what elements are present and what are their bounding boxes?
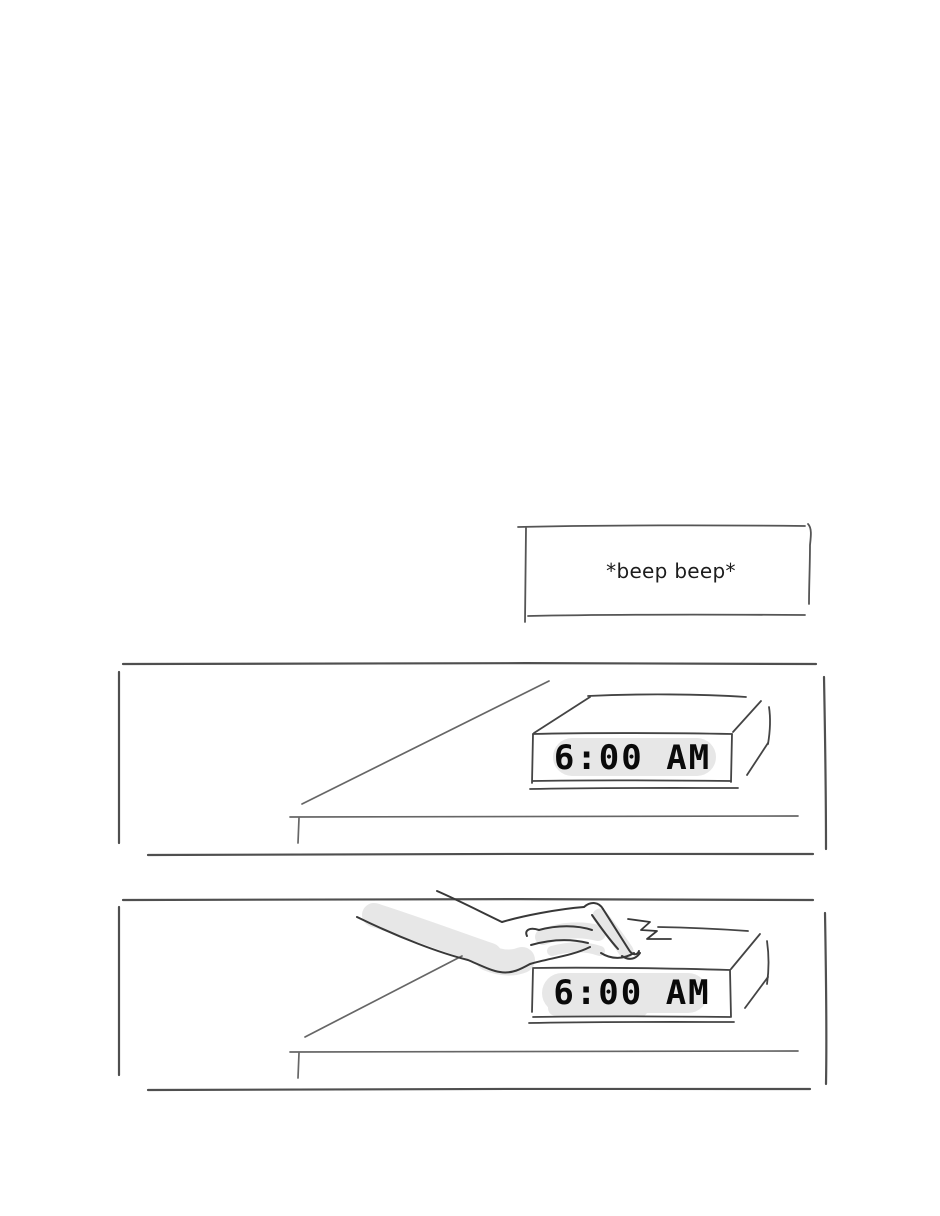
panel2-bottom <box>148 1089 810 1090</box>
clock2-time-display: 6:00 AM <box>533 968 731 1018</box>
press-motion-squiggle <box>628 919 671 939</box>
panel1-top <box>123 663 816 664</box>
palm-shade <box>488 958 522 962</box>
middle-finger-shade <box>543 930 598 937</box>
clock1-base-line <box>530 788 738 789</box>
index-knuckle <box>584 903 603 909</box>
table1-leg <box>298 818 299 843</box>
squiggle-zigzag <box>628 919 671 939</box>
panel2-right <box>825 913 826 1084</box>
clock1-top-left-edge <box>534 697 590 733</box>
clock1-time-display: 6:00 AM <box>533 733 732 782</box>
clock1-top-back-edge <box>588 694 746 697</box>
hand-back-contour <box>502 907 584 922</box>
under-finger-shade <box>552 947 600 951</box>
panel1-right <box>824 677 826 849</box>
table1-front-edge <box>290 816 798 817</box>
table1-back-edge <box>302 681 549 804</box>
arm-upper-contour <box>437 891 502 922</box>
table2-leg <box>298 1053 299 1078</box>
table2-front-edge <box>290 1051 798 1052</box>
clock2-right-face-bottom <box>745 977 768 1008</box>
clock1-right-face-bottom <box>747 743 768 775</box>
panel2-top <box>123 899 813 900</box>
clock2-base-line <box>529 1022 734 1023</box>
clock1-right-face-top <box>733 701 761 732</box>
clock2-right-face-top <box>731 934 760 969</box>
comic-page: *beep beep* 6:00 AM 6:00 AM <box>0 0 940 1216</box>
clock1-right-face-back <box>768 707 770 744</box>
sfx-caption-text: *beep beep* <box>525 526 809 616</box>
panel1-bottom <box>148 854 813 855</box>
table2-back-edge <box>305 956 462 1037</box>
clock2-top-back-edge <box>658 927 748 931</box>
